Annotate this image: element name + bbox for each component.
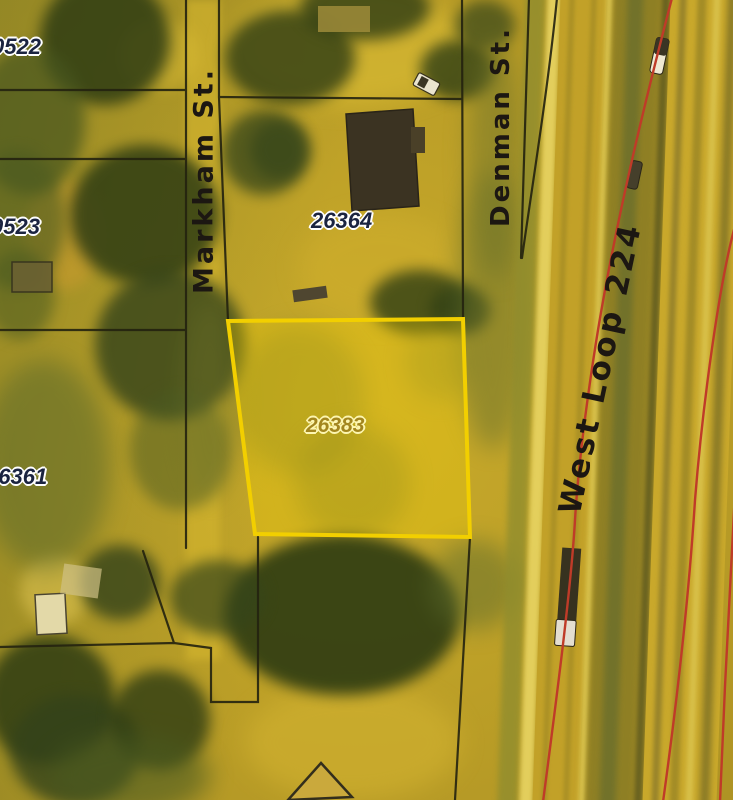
peaked-roof (288, 763, 352, 800)
parcel-line (455, 537, 470, 800)
highway-marking-line (663, 226, 733, 800)
shed-roof (35, 593, 67, 635)
building-annex (411, 127, 425, 153)
aerial-parcel-map: 0522 0523 26361 26364 26383 Markham St. … (0, 0, 733, 800)
building-roof (12, 262, 52, 292)
highway-markings (543, 0, 733, 800)
shed-roof (60, 564, 102, 599)
vehicle-car (413, 72, 441, 96)
highlighted-parcel-26383 (228, 319, 470, 537)
highway-marking-line (720, 492, 733, 800)
parcel-line (219, 97, 462, 99)
parcel-line-markham-east (219, 0, 228, 321)
trailer (292, 286, 327, 303)
parcel-line-denman-west (462, 0, 463, 320)
map-overlay (0, 0, 733, 800)
building-roof-26364 (346, 109, 419, 211)
parcel-line (143, 551, 174, 643)
highway-marking-line (543, 0, 672, 800)
outbuilding-pad (318, 6, 370, 32)
